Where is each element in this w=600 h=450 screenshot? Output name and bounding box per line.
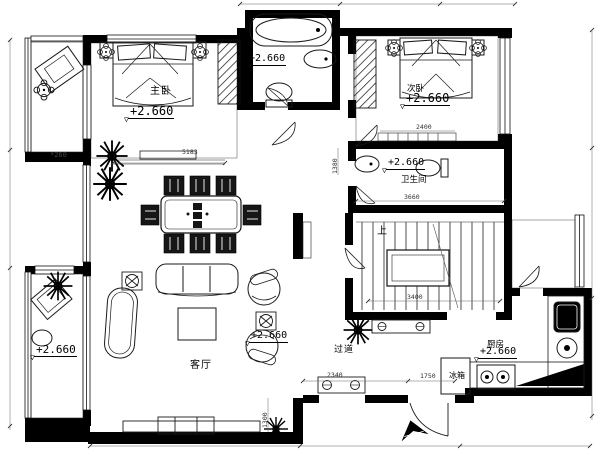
elevation-value: +2.660 — [251, 330, 287, 341]
sofa — [156, 264, 238, 296]
side-table — [256, 312, 276, 330]
dim-entry-side: 1300 — [262, 412, 269, 428]
dim-bathroom-width: 3660 — [404, 194, 420, 201]
dim-stairs-width: 3400 — [407, 294, 423, 301]
windows — [25, 35, 584, 418]
living-room-label: 客厅 — [190, 361, 212, 371]
top-bathroom-elevation: ▽+2.660 — [247, 54, 286, 66]
tv-stand — [123, 417, 260, 434]
armchair — [248, 268, 280, 305]
balcony-elevation: ▽+2.660 — [34, 344, 77, 357]
bathroom-label: 卫生间 — [401, 176, 427, 185]
master-bedroom-label: 主卧 — [150, 87, 172, 97]
elevation-value: +2.660 — [36, 343, 76, 356]
chaise-lounge — [104, 287, 139, 359]
elevation-marker-icon: ▽ — [243, 63, 248, 71]
elevation-value: +2.660 — [406, 91, 449, 105]
elevation-marker-icon: ▽ — [474, 356, 479, 364]
dining-set — [141, 176, 261, 253]
side-table — [122, 272, 142, 290]
elevation-marker-icon: ▽ — [245, 340, 250, 348]
elevation-marker-icon: ▽ — [382, 167, 387, 175]
stairs-up-label: 上 — [377, 227, 388, 237]
kitchen-elevation: ▽+2.660 — [478, 347, 517, 359]
dim-hall-side: 1380 — [332, 158, 339, 174]
flower-pot-icon — [34, 80, 54, 100]
floor-plan: 主卧 ▽+2.660 ▽+2.660 次卧 ▽+2.660 ▽+2.660 卫生… — [0, 0, 600, 450]
corridor-label: 过道 — [334, 346, 354, 355]
elevation-marker-icon: ▽ — [400, 103, 405, 111]
master-wardrobe — [218, 40, 240, 104]
dim-console-width: 2340 — [327, 372, 343, 379]
elevation-value: +2.660 — [480, 346, 516, 357]
fridge-label: 冰箱 — [449, 372, 465, 380]
dim-entry-width: 1750 — [420, 373, 436, 380]
coffee-table — [178, 308, 216, 340]
hall-console — [372, 320, 430, 333]
elevation-value: +2.660 — [249, 53, 285, 64]
elevation-value: +2.660 — [388, 157, 424, 168]
living-room-elevation: ▽+2.660 — [249, 331, 288, 343]
floorplan-linework — [0, 0, 600, 450]
entry-console — [318, 377, 365, 393]
master-bedroom-elevation: ▽+2.660 — [128, 105, 174, 119]
elevation-marker-icon: ▽ — [124, 116, 129, 124]
balcony-note: *260 — [50, 152, 67, 159]
second-bedroom-elevation: ▽+2.660 — [404, 92, 450, 106]
dim-bedroom2-width: 2400 — [416, 124, 432, 131]
entrance-arrow-icon — [397, 417, 429, 442]
elevation-marker-icon: ▽ — [30, 354, 35, 362]
counter-hatch — [516, 364, 584, 386]
second-wardrobe — [354, 40, 376, 108]
dim-living-width: 5183 — [182, 149, 198, 156]
elevation-value: +2.660 — [130, 104, 173, 118]
bathroom-elevation: ▽+2.660 — [386, 158, 425, 170]
